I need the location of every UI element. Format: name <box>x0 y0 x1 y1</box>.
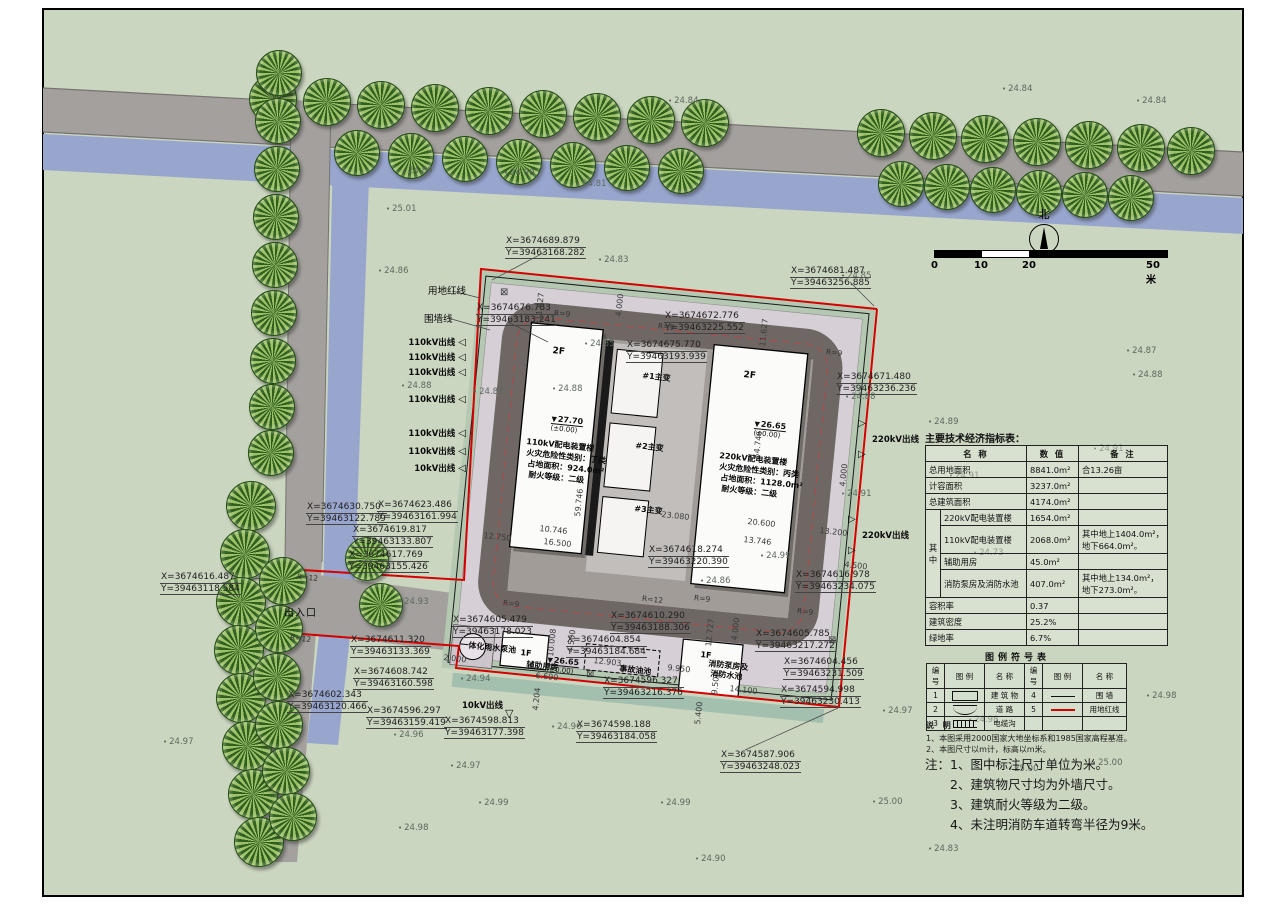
table-row: 110kV配电装置楼2068.0m²其中地上1404.0m²，地下664.0m²… <box>926 526 1168 554</box>
table-header-row: 编号图 例名 称 编号图 例名 称 <box>927 664 1127 689</box>
table-row: 建筑密度25.2% <box>926 614 1168 630</box>
table-row: 总用地面积8841.0m²合13.26亩 <box>926 462 1168 478</box>
scale-bar: 0 10 20 50米 <box>934 250 1168 272</box>
scale-tick: 50米 <box>1146 260 1168 286</box>
notes-small-title: 说 明 <box>926 720 1132 731</box>
north-arrow: 北 <box>1026 206 1062 254</box>
notes-big: 注：1、图中标注尺寸单位为米。 2、建筑物尺寸均为外墙尺寸。 3、建筑耐火等级为… <box>925 755 1153 835</box>
table-row: 容积率0.37 <box>926 598 1168 614</box>
legend-table-title: 图例符号表 <box>985 650 1050 663</box>
transformer-1 <box>611 349 663 417</box>
table-row: 1建 筑 物 4围 墙 <box>927 689 1127 703</box>
scale-tick: 10 <box>974 260 988 271</box>
table-row: 绿地率6.7% <box>926 630 1168 646</box>
table-row: 消防泵房及消防水池407.0m²其中地上134.0m²，地下273.0m²。 <box>926 570 1168 598</box>
table-row: 辅助用房45.0m² <box>926 554 1168 570</box>
indicator-table: 名 称数 值备 注 总用地面积8841.0m²合13.26亩 计容面积3237.… <box>925 445 1168 646</box>
table-header-row: 名 称数 值备 注 <box>926 446 1168 462</box>
note-line: 2、本图尺寸以m计，标高以m米。 <box>926 744 1132 755</box>
note-line: 3、建筑耐火等级为二级。 <box>950 795 1153 815</box>
notes-small: 说 明 1、本图采用2000国家大地坐标系和1985国家高程基准。 2、本图尺寸… <box>926 720 1132 755</box>
scale-tick: 0 <box>931 260 938 271</box>
substation-site <box>440 270 876 725</box>
scale-tick: 20 <box>1022 260 1036 271</box>
auxiliary-room <box>500 631 549 669</box>
note-line: 4、未注明消防车道转弯半径为9米。 <box>950 815 1153 835</box>
note-line: 1、本图采用2000国家大地坐标系和1985国家高程基准。 <box>926 733 1132 744</box>
scale-bar-track <box>934 250 1168 258</box>
fire-pump-house <box>678 639 743 697</box>
note-line: 2、建筑物尺寸均为外墙尺寸。 <box>950 775 1153 795</box>
wall-symbol-icon <box>1051 696 1075 697</box>
transformer-2 <box>604 423 656 491</box>
north-label: 北 <box>1026 206 1062 222</box>
table-row: 计容面积3237.0m² <box>926 478 1168 494</box>
road-symbol-icon <box>953 705 977 715</box>
table-row: 2道 路 5用地红线 <box>927 703 1127 717</box>
table-row: 其中220kV配电装置楼1654.0m² <box>926 510 1168 526</box>
indicator-table-title: 主要技术经济指标表： <box>925 430 1025 445</box>
red-line-symbol-icon <box>1051 709 1075 711</box>
table-row: 总建筑面积4174.0m² <box>926 494 1168 510</box>
note-line: 注：1、图中标注尺寸单位为米。 <box>925 755 1153 775</box>
site-plan-page: X=3674689.879 Y=39463168.282 X=3674676.7… <box>0 0 1280 905</box>
transformer-3 <box>597 497 648 557</box>
building-symbol-icon <box>952 691 978 701</box>
